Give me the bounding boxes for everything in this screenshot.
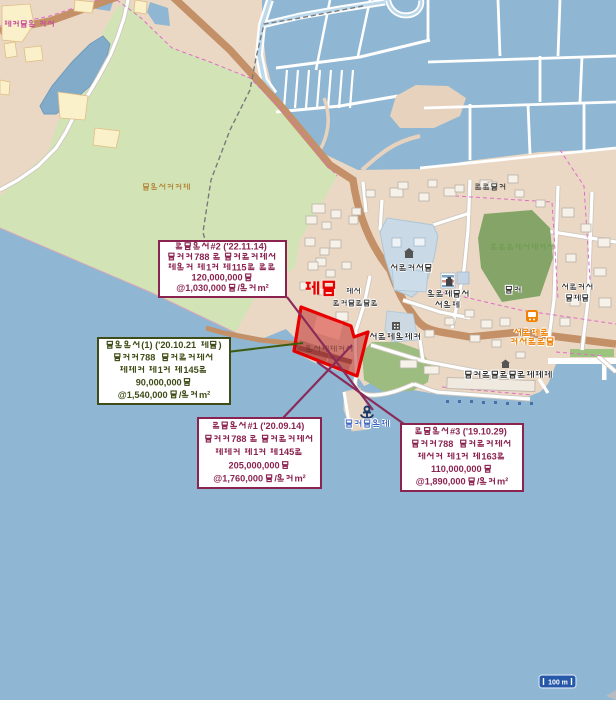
svg-text:@1,760,000: @1,760,000	[213, 474, 263, 484]
svg-text:m²: m²	[258, 283, 269, 293]
svg-text:/: /	[237, 283, 240, 293]
svg-text:#1 ('20.09.14): #1 ('20.09.14)	[248, 421, 305, 431]
svg-text:788: 788	[438, 439, 453, 449]
svg-text:#2 ('22.11.14): #2 ('22.11.14)	[211, 242, 267, 252]
svg-text:1: 1	[206, 262, 211, 272]
svg-text:#3 ('19.10.29): #3 ('19.10.29)	[450, 426, 507, 436]
svg-text:110,000,000: 110,000,000	[431, 464, 482, 474]
svg-text:205,000,000: 205,000,000	[229, 460, 280, 470]
svg-text:90,000,000: 90,000,000	[136, 377, 182, 387]
svg-text:1: 1	[253, 447, 258, 457]
svg-text:m²: m²	[199, 390, 210, 400]
svg-text:m²: m²	[497, 477, 508, 487]
svg-text:120,000,000: 120,000,000	[192, 273, 243, 283]
svg-text:788: 788	[194, 252, 209, 262]
svg-text:1: 1	[158, 365, 163, 375]
svg-text:100 m: 100 m	[548, 680, 568, 687]
svg-text:788: 788	[140, 353, 155, 363]
svg-text:m²: m²	[295, 474, 306, 484]
svg-text:/: /	[477, 477, 480, 487]
svg-text:@1,030,000: @1,030,000	[176, 283, 226, 293]
svg-text:145: 145	[279, 447, 294, 457]
svg-text:@1,890,000: @1,890,000	[416, 477, 466, 487]
svg-text:163: 163	[481, 452, 496, 462]
svg-text:/: /	[274, 474, 277, 484]
svg-text:1: 1	[456, 452, 461, 462]
svg-text:115: 115	[232, 262, 247, 272]
svg-text:@1,540,000: @1,540,000	[118, 390, 168, 400]
svg-text:/: /	[179, 390, 182, 400]
svg-text:145: 145	[183, 365, 198, 375]
svg-text:(1) ('20.10.21: (1) ('20.10.21	[141, 340, 196, 350]
svg-text:): )	[219, 340, 222, 350]
svg-text:788: 788	[231, 434, 246, 444]
